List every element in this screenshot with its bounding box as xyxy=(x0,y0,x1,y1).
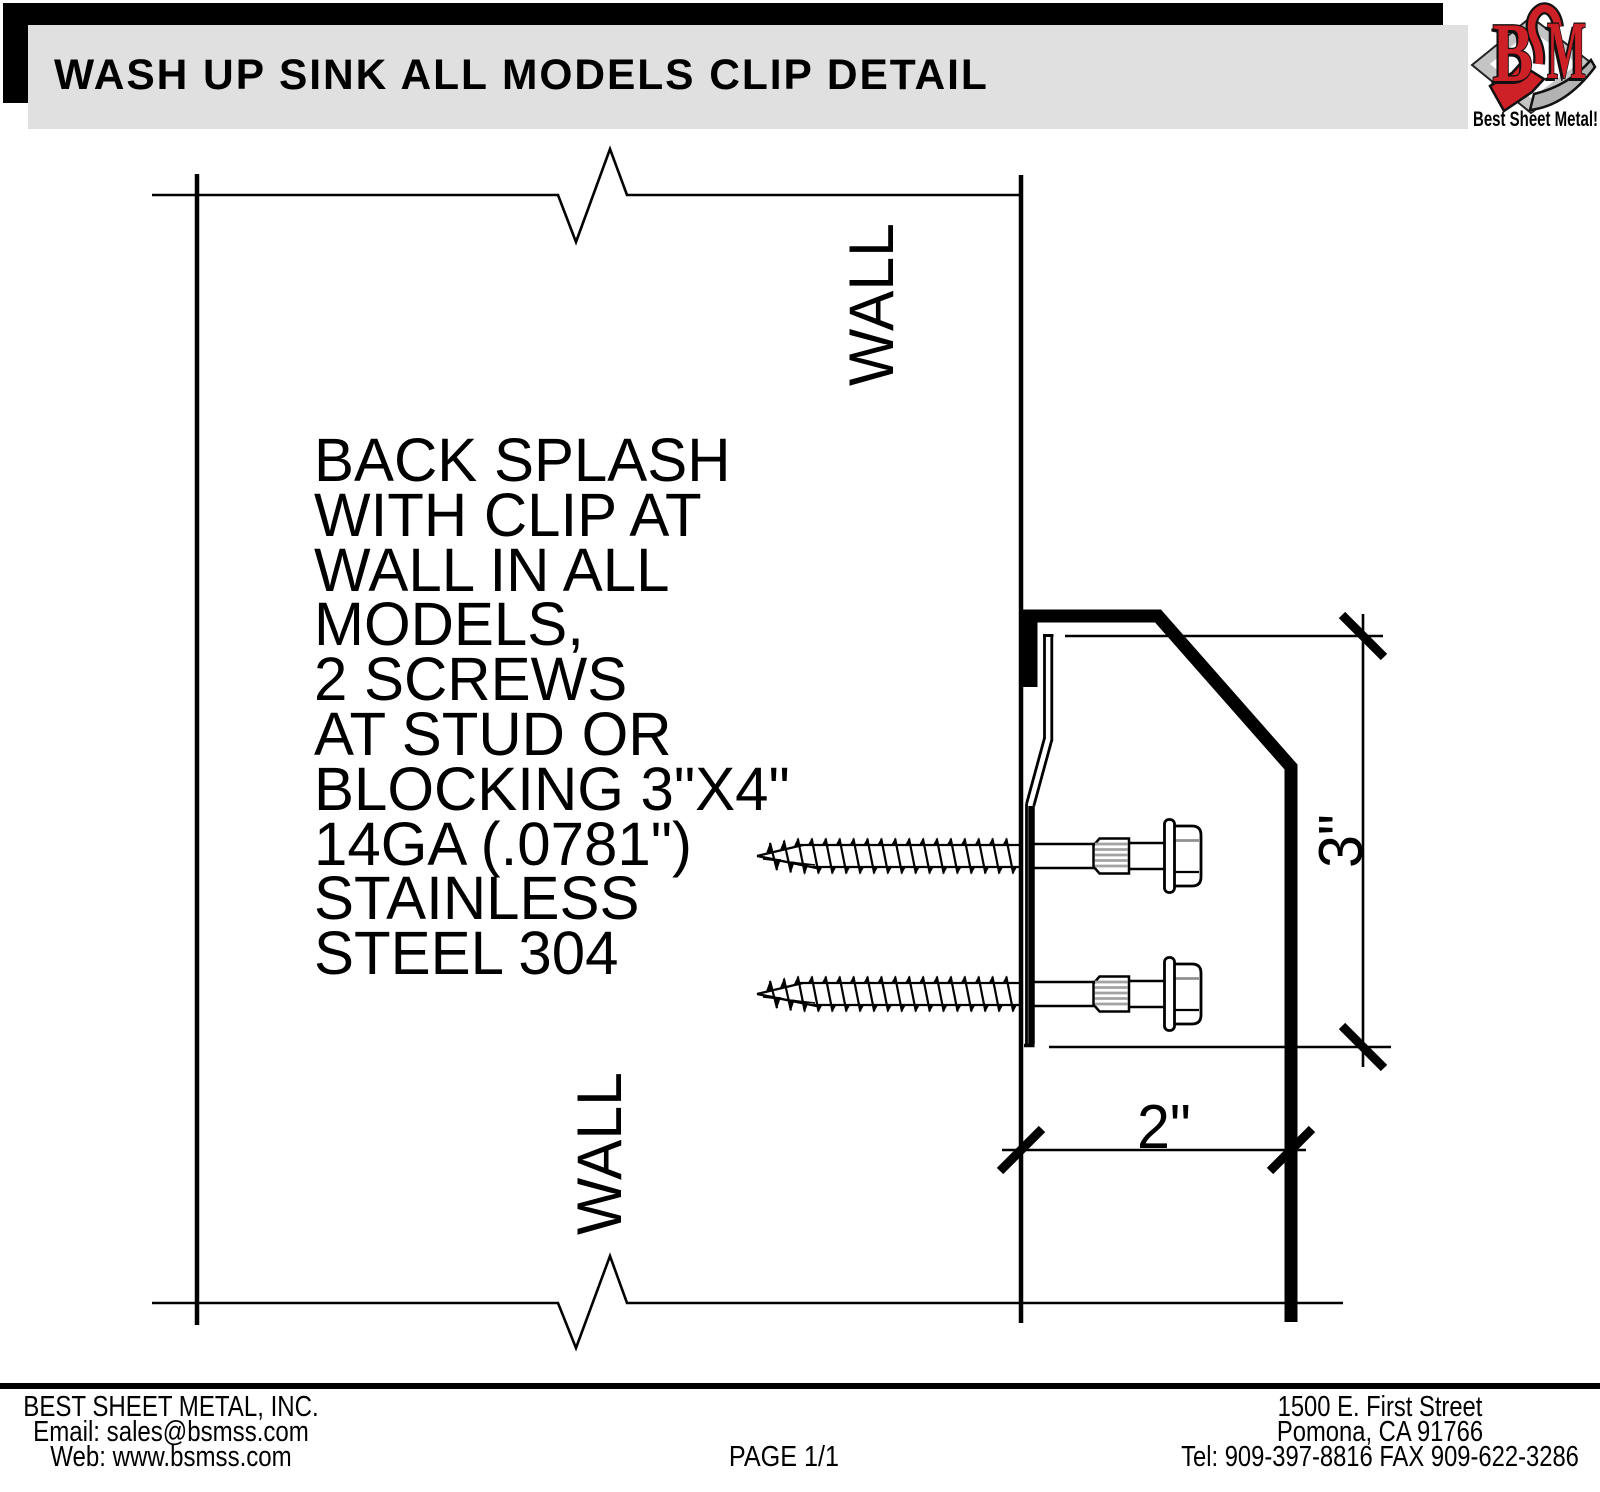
svg-text:3": 3" xyxy=(1306,814,1376,868)
svg-text:2": 2" xyxy=(1137,1092,1191,1162)
svg-text:WALL: WALL xyxy=(837,223,908,386)
svg-text:WALL: WALL xyxy=(565,1072,636,1235)
